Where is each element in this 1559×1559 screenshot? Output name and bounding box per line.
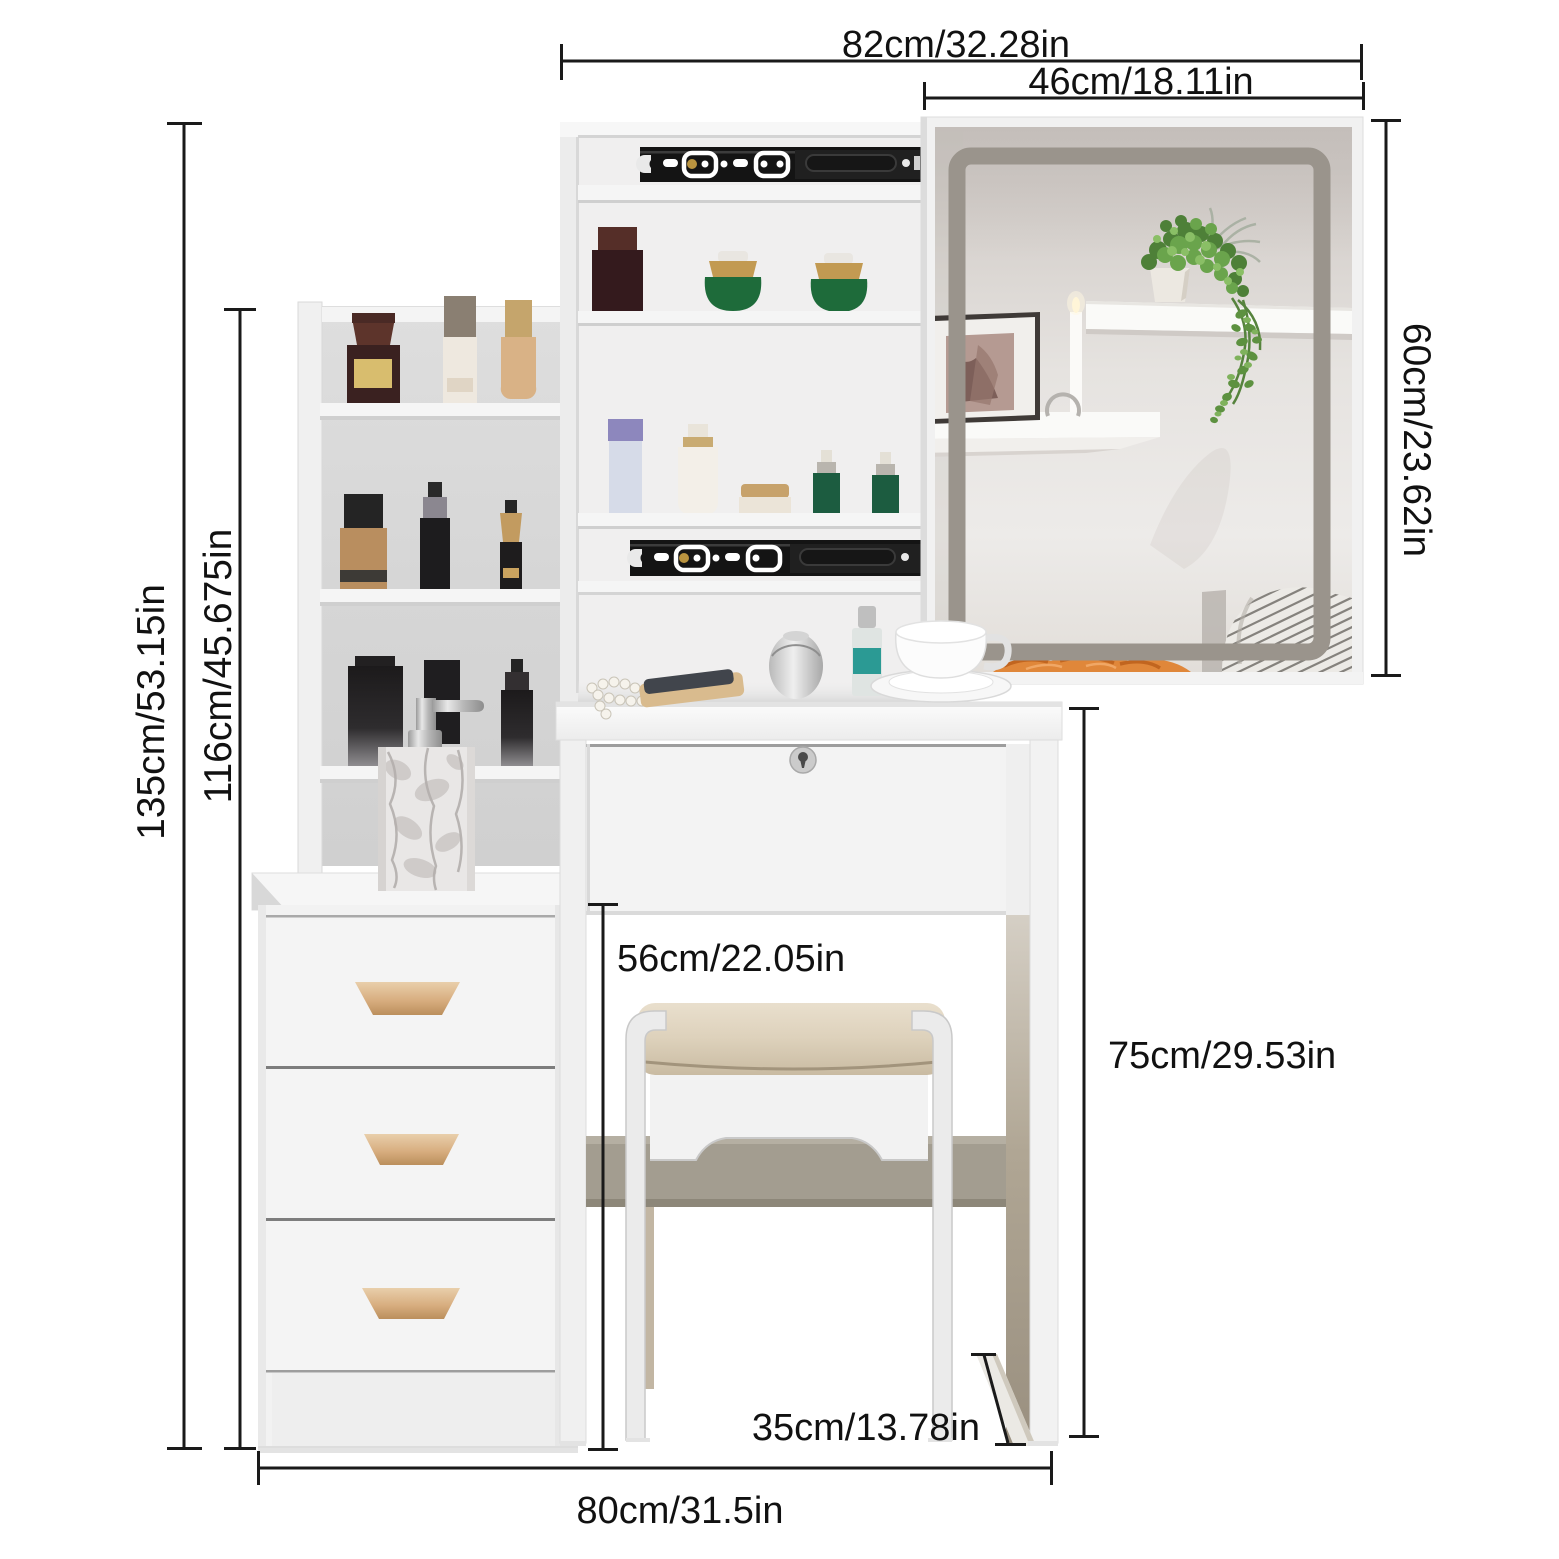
svg-text:80cm/31.5in: 80cm/31.5in <box>576 1490 783 1532</box>
svg-text:60cm/23.62in: 60cm/23.62in <box>1395 323 1438 557</box>
svg-text:75cm/29.53in: 75cm/29.53in <box>1108 1035 1336 1077</box>
svg-text:135cm/53.15in: 135cm/53.15in <box>130 584 173 840</box>
svg-text:35cm/13.78in: 35cm/13.78in <box>752 1407 980 1449</box>
svg-text:56cm/22.05in: 56cm/22.05in <box>617 938 845 980</box>
svg-text:82cm/32.28in: 82cm/32.28in <box>842 24 1070 66</box>
svg-text:116cm/45.675in: 116cm/45.675in <box>197 529 240 804</box>
svg-text:46cm/18.11in: 46cm/18.11in <box>1028 61 1253 103</box>
